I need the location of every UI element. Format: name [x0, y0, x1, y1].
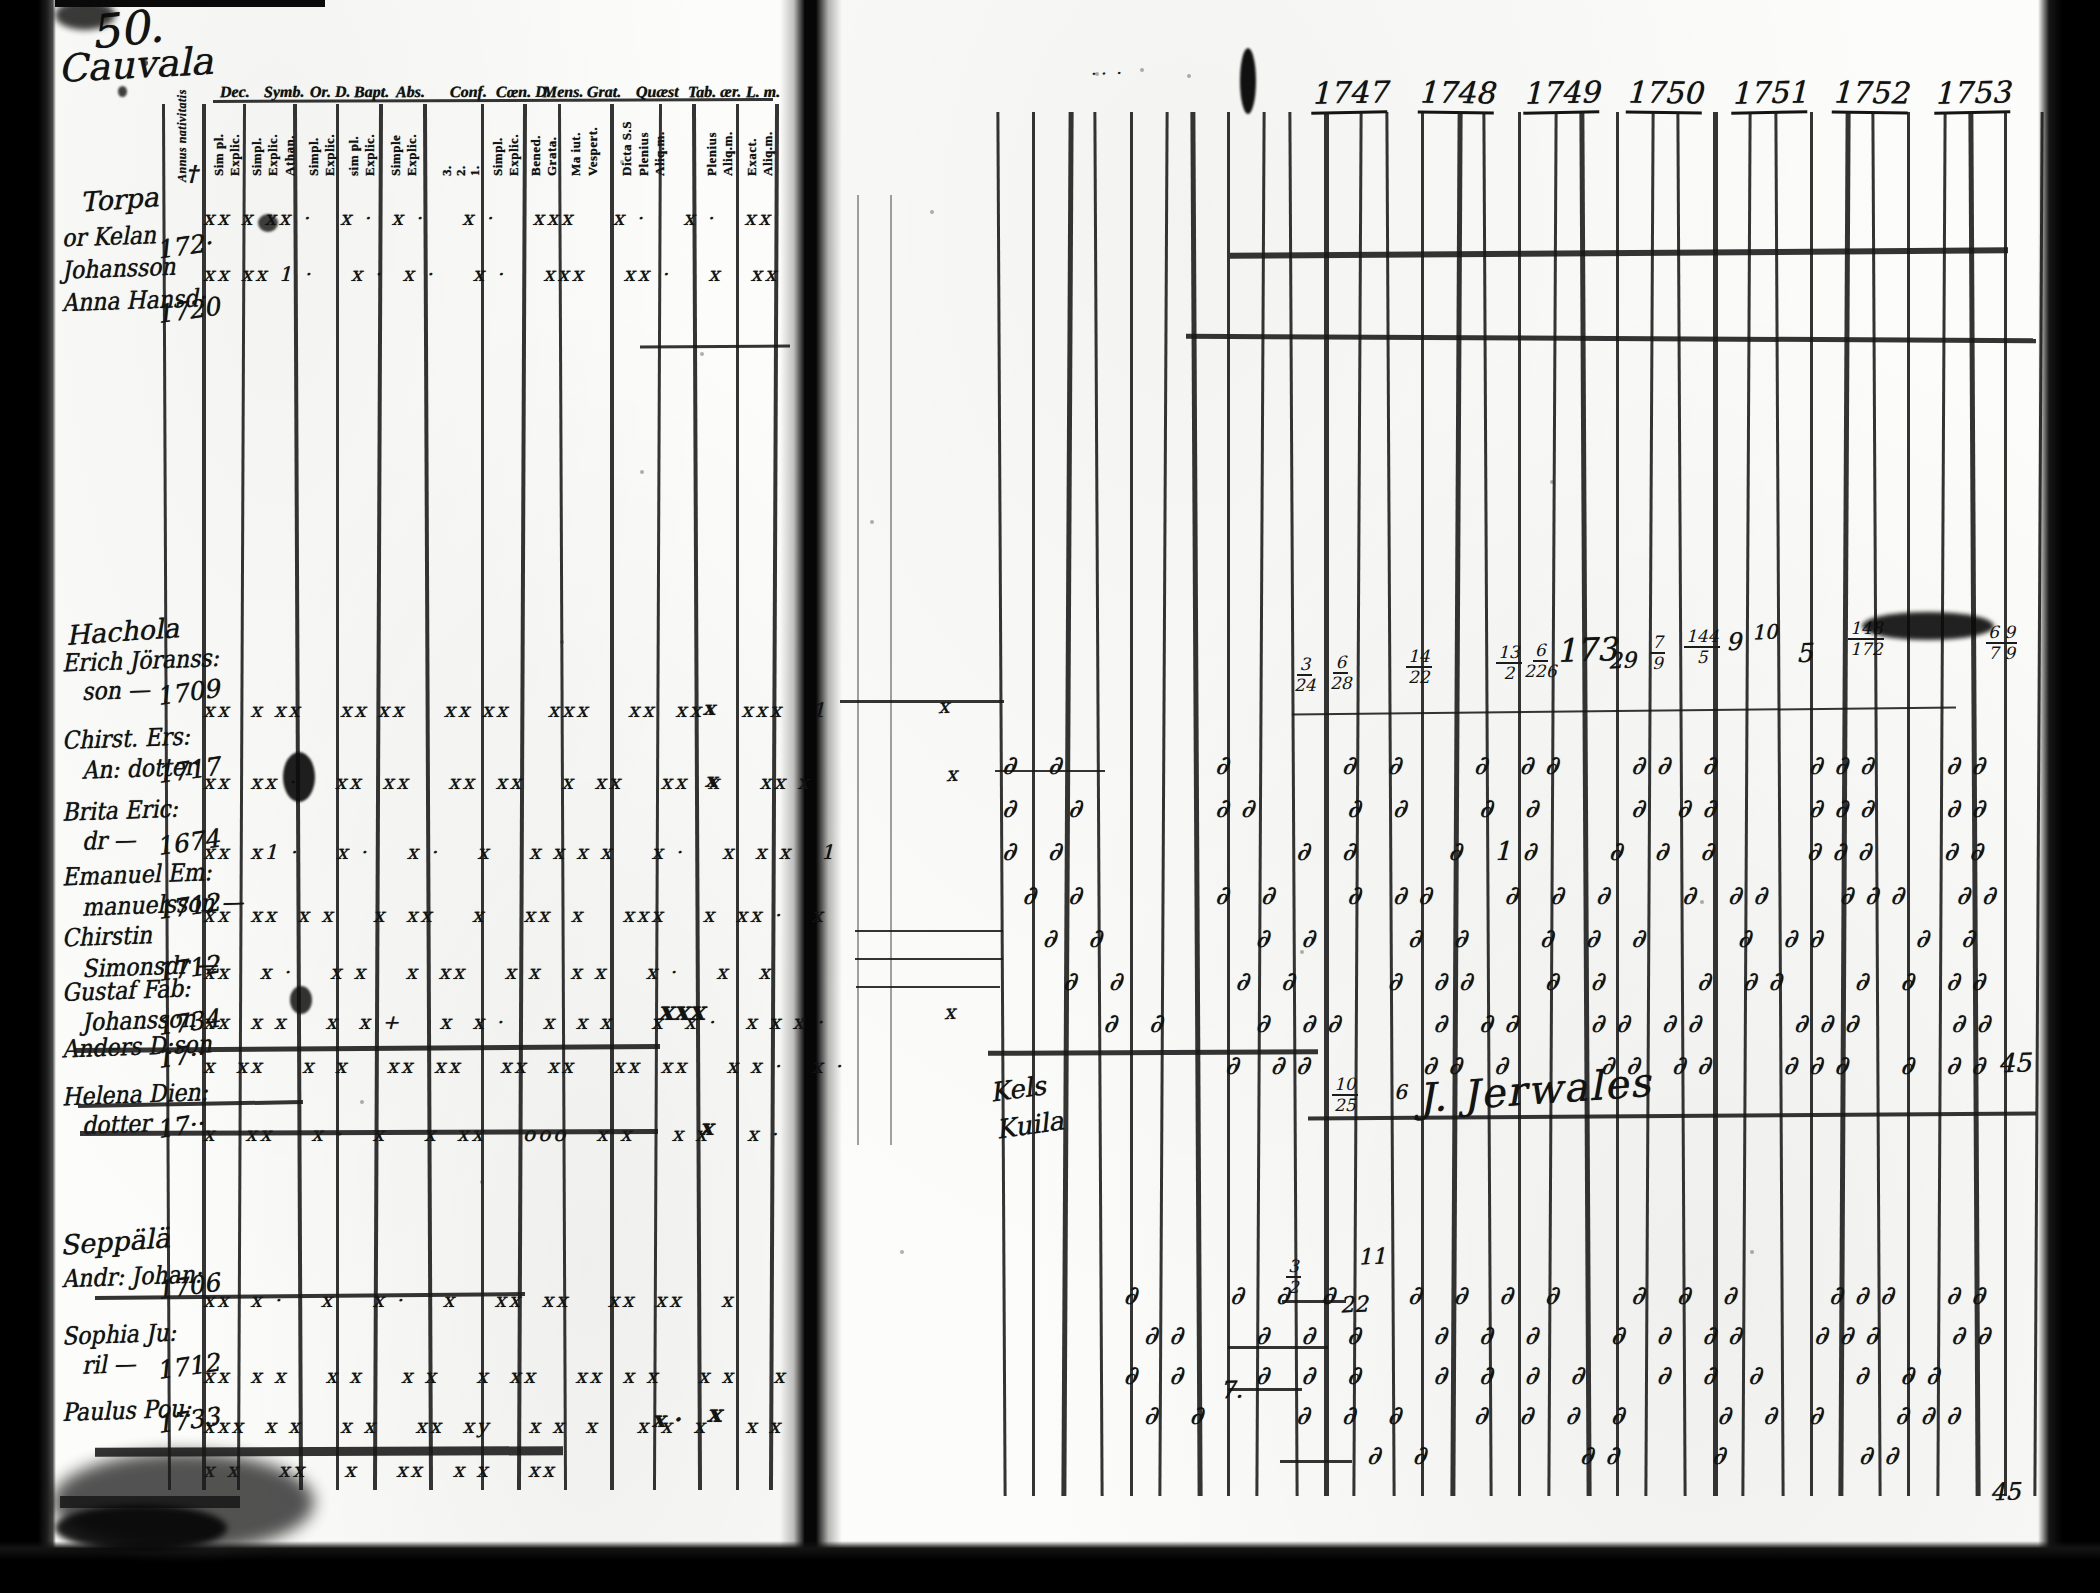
column-group-header: Dec. [220, 84, 250, 100]
left-scan-edge [0, 0, 56, 1593]
sub-column-header: Plenius [705, 132, 718, 176]
fraction-note: 1445 [1684, 628, 1720, 666]
communion-marks: ∂ ∂ ∂ ∂ ∂ ∂ ∂ ∂ ∂ ∂ ∂ ∂ ∂∂∂ [1002, 1402, 1992, 1428]
sub-column-header: 1. [468, 165, 481, 176]
sub-column-header: Dicta S.S [620, 121, 633, 176]
person-name: Erich Jöranss: [62, 646, 220, 676]
fraction-note: 79 [1650, 634, 1665, 672]
fraction-note: 32 [1286, 1258, 1301, 1296]
sub-column-header: Explic. [323, 134, 336, 176]
person-name: Gustaf Fab: [62, 976, 191, 1005]
margin-number: x [944, 1002, 956, 1022]
margin-number: 11 [1358, 1246, 1387, 1269]
farm-heading: Seppälä [59, 1224, 170, 1259]
column-group-header: Abs. [396, 84, 425, 100]
right-scan-edge [2038, 0, 2100, 1593]
attendance-marks: xx x x x x + x x · x x x x x · x x x · [203, 1012, 826, 1032]
ink-stain [118, 86, 127, 97]
sub-column-header: Aliq.m. [721, 131, 734, 176]
communion-marks: ∂ ∂ ∂ ∂ ∂ ∂ ∂ ∂ ∂ ∂ ∂∂ ∂ ∂ [1002, 925, 1986, 951]
sub-column-header: Vespert. [586, 127, 599, 176]
stray-mark: † [186, 162, 198, 184]
fraction-note: 6226 [1524, 642, 1556, 680]
ink-stain [283, 752, 315, 802]
left-column-rule [736, 104, 739, 1490]
margin-note: Kels [988, 1072, 1047, 1106]
margin-number: 10 [1752, 622, 1778, 643]
year-header: 1748 [1418, 77, 1495, 114]
attendance-marks: xx x x x x x x x xx xx x x x x x [203, 1366, 788, 1386]
ink-stain [640, 470, 644, 474]
attendance-marks: x xx x x xx xx xx xx xx xx x x · x · [203, 1056, 844, 1076]
left-column-rule [610, 104, 614, 1490]
sub-column-header: Explic. [363, 134, 376, 176]
stray-mark: xxx [658, 998, 705, 1024]
year-header: 1747 [1311, 77, 1388, 114]
sub-column-header: Bened. [529, 135, 542, 176]
ink-stain [870, 520, 874, 524]
stray-mark: x · [652, 1408, 680, 1430]
person-name: ril — [82, 1352, 136, 1378]
ink-stain [1750, 1250, 1754, 1254]
communion-marks: ∂ ∂ ∂ ∂ ∂ ∂ ∂∂ ∂∂ ∂ ∂∂∂ ∂∂ [1002, 752, 1997, 778]
attendance-marks: xx xx 1 · x · x · x · xxx xx · x xx [203, 264, 779, 284]
place-title: Cauvala [57, 42, 214, 88]
ink-stain [1700, 900, 1704, 904]
margin-number: 45 [1990, 1479, 2021, 1504]
sub-column-header: Simpl. [250, 137, 263, 176]
sub-column-header: Grata. [545, 137, 558, 176]
column-group-header: Symb. [264, 84, 305, 100]
ink-stain [258, 214, 278, 232]
person-name: Chirst. Ers: [62, 724, 191, 753]
sub-column-header: Simpl. [491, 137, 504, 176]
person-name: or Kelan [62, 223, 157, 251]
person-name: Brita Eric: [62, 797, 179, 826]
attendance-marks: xx x xx · x · x · x · xxx x · x · xx [203, 208, 773, 228]
ink-stain [1240, 48, 1256, 114]
birth-year: 17·· [154, 1111, 205, 1142]
right-faint-rule [857, 195, 859, 1145]
ink-stain [1550, 480, 1554, 484]
binding-shadow [780, 0, 842, 1593]
ink-stain [930, 210, 934, 214]
margin-number: 9 [1726, 630, 1742, 655]
right-faint-rule [890, 195, 892, 1145]
scanned-parish-register: 50. Cauvala Dec.Symb.Or. D.Bapt.Abs.Conf… [0, 0, 2100, 1593]
margin-number: x [938, 696, 950, 716]
year-header: 1753 [1934, 77, 2011, 114]
right-hand-rule [856, 986, 1000, 988]
person-name: Johansson [62, 255, 176, 284]
ink-stain [620, 160, 624, 164]
year-header: 1751 [1731, 77, 1808, 114]
farm-heading: Hachola [65, 614, 180, 649]
margin-number: 6 [1394, 1082, 1407, 1102]
farm-heading: Torpa [79, 183, 159, 215]
ink-stain [480, 1180, 484, 1184]
fraction-note: 132 [1496, 644, 1522, 682]
sub-column-header: sim pl. [347, 136, 360, 176]
column-group-header: Or. D. [310, 84, 351, 100]
communion-marks: ∂ ∂ ∂ ∂∂ ∂ ∂∂ ∂∂ ∂∂ ∂∂∂ ∂∂ [1002, 1010, 2002, 1036]
sub-column-header: Explic. [405, 134, 418, 176]
ink-stain [1140, 68, 1144, 72]
communion-marks: ∂ ∂ ∂ ∂ ∂ ∂ ∂ ∂ ∂ ∂ ∂ ∂∂∂ ∂∂ [1002, 1282, 1997, 1308]
fraction-note: 1422 [1406, 648, 1432, 686]
stray-mark: x [707, 1402, 721, 1426]
sub-column-header: 2. [454, 165, 467, 176]
communion-marks: ∂ ∂ ∂∂ ∂ ∂∂ [1002, 1442, 1950, 1468]
fraction-note: 324 [1294, 656, 1316, 694]
left-column-rule [336, 104, 339, 1490]
ink-stain [55, 1505, 227, 1551]
sub-column-header: Explic. [266, 134, 279, 176]
right-hand-rule [855, 958, 1003, 960]
person-name: dr — [82, 828, 136, 854]
communion-marks: ∂ ∂ ∂ ∂ ∂ ∂ ∂ ∂ ∂ ∂ ∂ ∂ ∂ ∂∂ [1002, 1362, 1992, 1388]
margin-number: 45 [1998, 1049, 2032, 1076]
fraction-note: 628 [1330, 654, 1352, 692]
communion-marks: ∂ ∂ ∂ ∂ ∂ ∂∂ ∂ ∂ ∂ ∂∂ ∂ ∂ ∂∂ [1002, 968, 1997, 994]
person-name: Sophia Ju: [62, 1321, 177, 1350]
ink-stain [55, 0, 115, 30]
ink-stain [700, 352, 704, 356]
margin-number: 7. [1220, 1378, 1244, 1403]
sub-column-header: 3. [440, 165, 453, 176]
attendance-marks: xx x xx xx xx xx xx xxx xx xx xxx 1 [203, 700, 828, 720]
ink-stain [290, 986, 312, 1014]
margin-number: x [946, 764, 958, 784]
sub-column-header: Exact. [745, 138, 758, 176]
sub-column-header: Explic. [507, 134, 520, 176]
stray-mark: x [703, 698, 715, 718]
attendance-marks: xx xx x x x xx x xx x xxx x xx · x [203, 905, 825, 925]
sub-column-header: Sim pl. [212, 133, 225, 176]
bottom-scan-edge [0, 1541, 2100, 1593]
left-column-rule [481, 104, 484, 1490]
ink-stain [1862, 612, 1994, 640]
fraction-note: 1025 [1332, 1076, 1358, 1114]
ink-stain [1187, 74, 1191, 78]
person-name: son — [82, 678, 151, 705]
stray-mark: x [705, 770, 717, 790]
stray-mark: x [700, 1116, 713, 1138]
year-header: 1749 [1523, 77, 1600, 114]
communion-marks: ∂∂ ∂ ∂ ∂ ∂ ∂ ∂ ∂ ∂ ∂∂ ∂∂∂ ∂∂ [1002, 1322, 2002, 1348]
attendance-marks: xxx x x x x xx xy x x x x x x x x [203, 1416, 783, 1436]
year-header: 1752 [1832, 77, 1909, 114]
birth-year: 17·· [154, 1041, 205, 1072]
right-column-rule [2004, 112, 2007, 1496]
right-hand-rule [840, 700, 1004, 703]
sub-column-header: Aliq.m. [761, 131, 774, 176]
sub-column-header: Ma iut. [569, 132, 582, 176]
ink-stain [560, 640, 564, 644]
ink-stain [1095, 72, 1099, 76]
sub-column-header: Simple [389, 135, 402, 176]
ink-stain [360, 1100, 364, 1104]
right-hand-rule [855, 930, 1003, 932]
year-header: 1750 [1626, 77, 1703, 114]
ink-stain [900, 1250, 904, 1254]
margin-number: 29 [1608, 650, 1637, 673]
ink-stain [1300, 950, 1304, 954]
communion-marks: ∂ ∂ ∂∂ ∂ ∂ ∂ ∂ ∂ ∂∂ ∂∂∂ ∂∂ [1002, 795, 1997, 821]
sub-column-header: Explic. [228, 134, 241, 176]
sub-column-header: Plenius [637, 132, 650, 176]
attendance-marks: xx x1 · x · x · x x x x x x · x x x 1 [203, 842, 837, 862]
communion-marks: ∂ ∂ ∂ ∂ ∂ ∂∂ ∂ ∂ ∂ ∂ ∂∂ ∂∂∂ ∂∂ [1002, 882, 2007, 908]
margin-number: 22 [1340, 1294, 1369, 1317]
column-group-header: Bapt. [354, 84, 389, 100]
attendance-marks: xx x · x x x xx x x x x x · x x [203, 962, 773, 982]
person-name: Emanuel Em: [62, 860, 213, 890]
margin-number: 5 [1796, 640, 1813, 667]
column-group-header: Conf. [450, 84, 487, 100]
communion-marks: ∂ ∂ ∂ ∂ ∂ 1∂ ∂ ∂ ∂ ∂∂∂ ∂∂ [1002, 838, 1995, 864]
ink-stain [142, 60, 148, 66]
person-name: Chirstin [62, 923, 153, 951]
sub-column-header: Simpl. [307, 137, 320, 176]
